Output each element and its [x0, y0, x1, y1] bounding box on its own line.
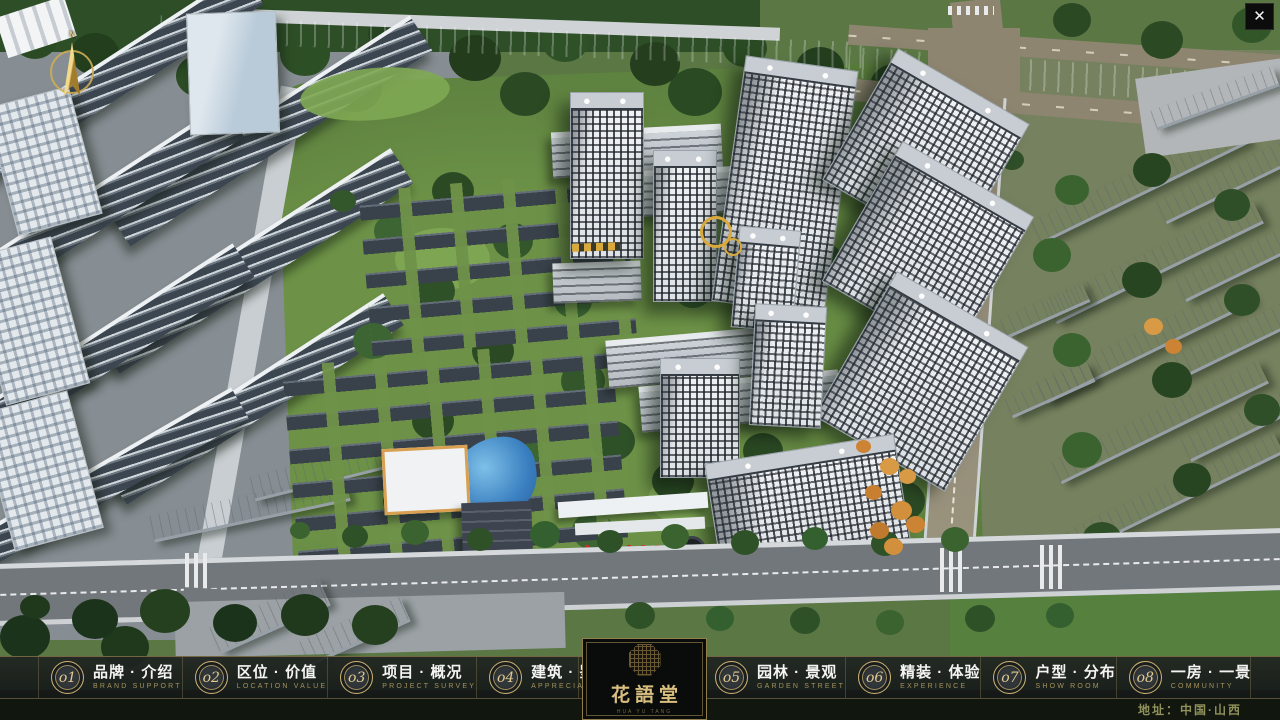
- crosswalk-top: [948, 6, 994, 15]
- menu-number-badge: o4: [489, 661, 522, 694]
- shuttle-carts: [572, 242, 620, 252]
- crosswalk: [1040, 545, 1066, 589]
- menu-item-floorplan-distribution[interactable]: o7 户型 · 分布 SHOW ROOM: [980, 657, 1115, 698]
- menu-label-zh: 品牌 · 介绍: [93, 665, 182, 681]
- menu-number-badge: o5: [715, 661, 748, 694]
- clubhouse-orange: [381, 445, 470, 515]
- tree-cluster-bottom-left: [20, 595, 50, 619]
- menu-label-en: SHOW ROOM: [1035, 683, 1115, 690]
- menu-item-garden-landscape[interactable]: o5 园林 · 景观 GARDEN STREET: [702, 657, 845, 698]
- menu-label-en: PROJECT SURVEY: [382, 683, 476, 690]
- glass-tower: [186, 10, 280, 135]
- menu-label-zh: 精装 · 体验: [900, 665, 980, 681]
- menu-item-project-survey[interactable]: o3 项目 · 概况 PROJECT SURVEY: [327, 657, 476, 698]
- logo-subtext: HUA YU TANG: [617, 709, 672, 715]
- menu-number-badge: o8: [1129, 661, 1162, 694]
- menu-item-interior-experience[interactable]: o6 精装 · 体验 EXPERIENCE: [845, 657, 980, 698]
- orange-tree-cluster: [856, 440, 871, 453]
- compass-north-label: N: [69, 30, 75, 39]
- logo-home-button[interactable]: 花語堂 HUA YU TANG: [582, 638, 707, 720]
- menu-number-badge: o1: [51, 661, 84, 694]
- menu-label-en: COMMUNITY: [1171, 683, 1251, 690]
- menu-label-zh: 户型 · 分布: [1035, 665, 1115, 681]
- menu-item-brand-intro[interactable]: o1 品牌 · 介绍 BRAND SUPPORT: [38, 657, 182, 698]
- menu-label-zh: 区位 · 价值: [237, 665, 327, 681]
- menu-number-badge: o7: [993, 661, 1026, 694]
- menu-label-zh: 项目 · 概况: [382, 665, 476, 681]
- menu-label-en: EXPERIENCE: [900, 683, 980, 690]
- tree-cluster-estate: [330, 190, 356, 212]
- gold-play-ring: [724, 238, 742, 256]
- menu-group-left: o1 品牌 · 介绍 BRAND SUPPORT o2 区位 · 价值 LOCA…: [38, 657, 579, 698]
- close-icon: ✕: [1253, 7, 1266, 25]
- presentation-window: N ✕ o1 品牌 · 介绍 BRAND SUPPORT o2 区位 · 价值 …: [0, 0, 1280, 720]
- menu-item-room-view[interactable]: o8 一房 · 一景 COMMUNITY: [1116, 657, 1251, 698]
- menu-item-location-value[interactable]: o2 区位 · 价值 LOCATION VALUE: [182, 657, 327, 698]
- menu-label-zh: 一房 · 一景: [1171, 665, 1251, 681]
- highrise-tower: [570, 92, 644, 259]
- close-button[interactable]: ✕: [1245, 3, 1274, 30]
- logo-seal-icon: [629, 644, 661, 676]
- map-3d-view[interactable]: [0, 0, 1280, 720]
- menu-number-badge: o6: [858, 661, 891, 694]
- menu-number-badge: o2: [195, 661, 228, 694]
- menu-label-en: BRAND SUPPORT: [93, 683, 182, 690]
- tree-row-boulevard: [290, 522, 310, 539]
- crosswalk: [940, 548, 966, 592]
- menu-group-right: o5 园林 · 景观 GARDEN STREET o6 精装 · 体验 EXPE…: [702, 657, 1251, 698]
- logo-name: 花語堂: [606, 680, 683, 707]
- menu-label-en: GARDEN STREET: [757, 683, 845, 690]
- traditional-hall: [461, 501, 533, 551]
- project-address: 地址：中国·山西: [1138, 701, 1242, 718]
- highrise-tower: [749, 303, 827, 429]
- menu-number-badge: o3: [340, 661, 373, 694]
- menu-label-en: LOCATION VALUE: [237, 683, 327, 690]
- compass[interactable]: N: [44, 44, 100, 100]
- menu-label-zh: 园林 · 景观: [757, 665, 845, 681]
- mid-rise-slab: [552, 260, 641, 303]
